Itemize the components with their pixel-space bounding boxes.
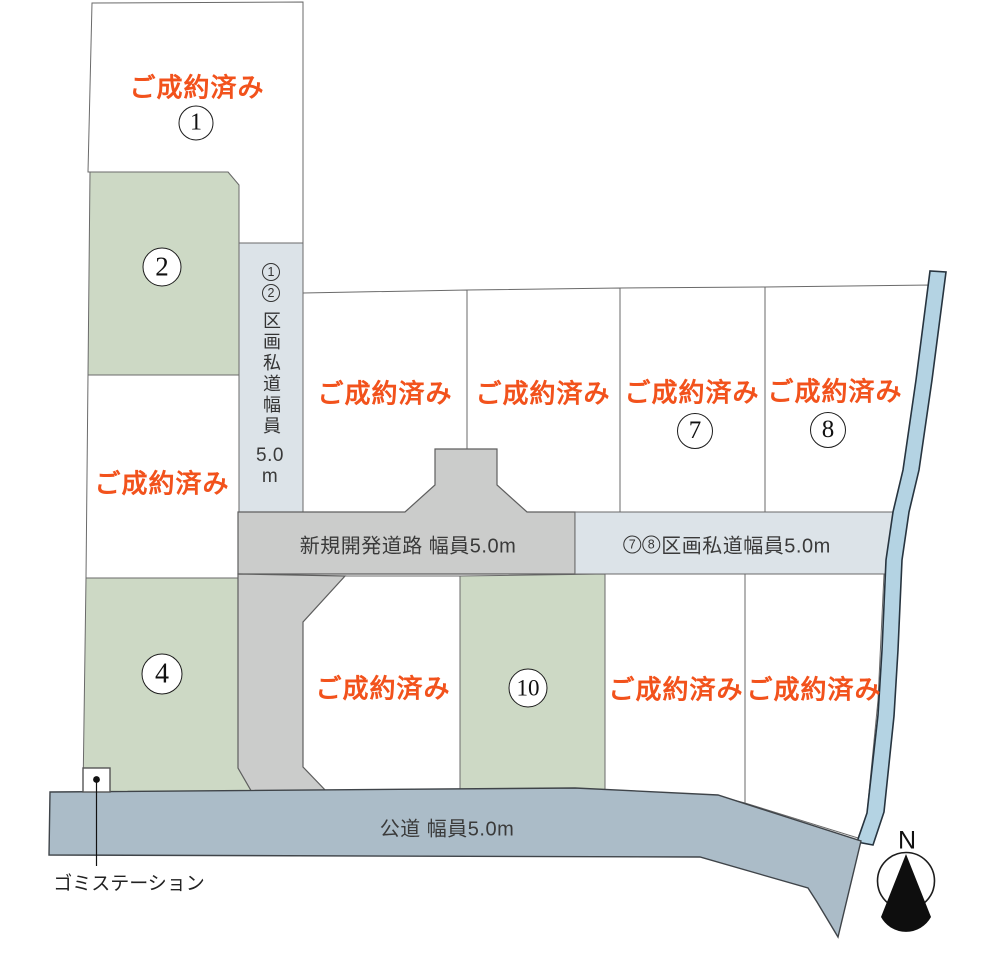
circled-7-icon: 7 (623, 535, 641, 553)
road-new-dev-label: 新規開発道路 幅員5.0m (300, 530, 517, 559)
plot-4-number: 4 (142, 654, 183, 695)
plot-1-number: 1 (179, 106, 214, 141)
road-private-12-width-value: 5.0 (256, 445, 284, 467)
circled-2-icon: 2 (262, 284, 280, 302)
road-private-12-label: 区画私道幅員 (262, 311, 280, 437)
plot-8-sold-label: ご成約済み (767, 372, 902, 409)
garbage-station-dot (93, 776, 100, 783)
road-private-12-num-2: 2 (262, 284, 280, 302)
circled-8-icon: 8 (642, 535, 660, 553)
road-private-78-label: 7 8 区画私道幅員5.0m (623, 530, 830, 559)
plot-8-number: 8 (810, 412, 846, 448)
road-private-12-width-unit: m (262, 466, 278, 488)
lot-map: ご成約済み 1 2 ご成約済み 4 1 2 区画私道幅員 5.0 m ご成約済み… (0, 0, 988, 960)
circled-1-icon: 1 (262, 263, 280, 281)
plot-2-number: 2 (143, 248, 182, 287)
plot-b1-sold-label: ご成約済み (315, 669, 450, 706)
plot-10-number: 10 (509, 669, 548, 708)
road-private-12-num-1: 1 (262, 263, 280, 281)
garbage-station-label: ゴミステーション (53, 869, 205, 896)
plot-1-sold-label: ご成約済み (129, 68, 264, 105)
plot-b4-sold-label: ご成約済み (746, 670, 881, 707)
road-public-label: 公道 幅員5.0m (380, 813, 515, 842)
plot-m2-sold-label: ご成約済み (475, 374, 610, 411)
plot-7-number: 7 (677, 413, 713, 449)
plot-m1-sold-label: ご成約済み (317, 374, 452, 411)
compass-north-label: N (898, 827, 916, 856)
plot-3-sold-label: ご成約済み (94, 464, 229, 501)
road-public-shape (49, 788, 861, 937)
plot-7-sold-label: ご成約済み (624, 373, 759, 410)
road-private-78-label-text: 区画私道幅員5.0m (661, 530, 830, 559)
plot-b3-sold-label: ご成約済み (608, 670, 743, 707)
